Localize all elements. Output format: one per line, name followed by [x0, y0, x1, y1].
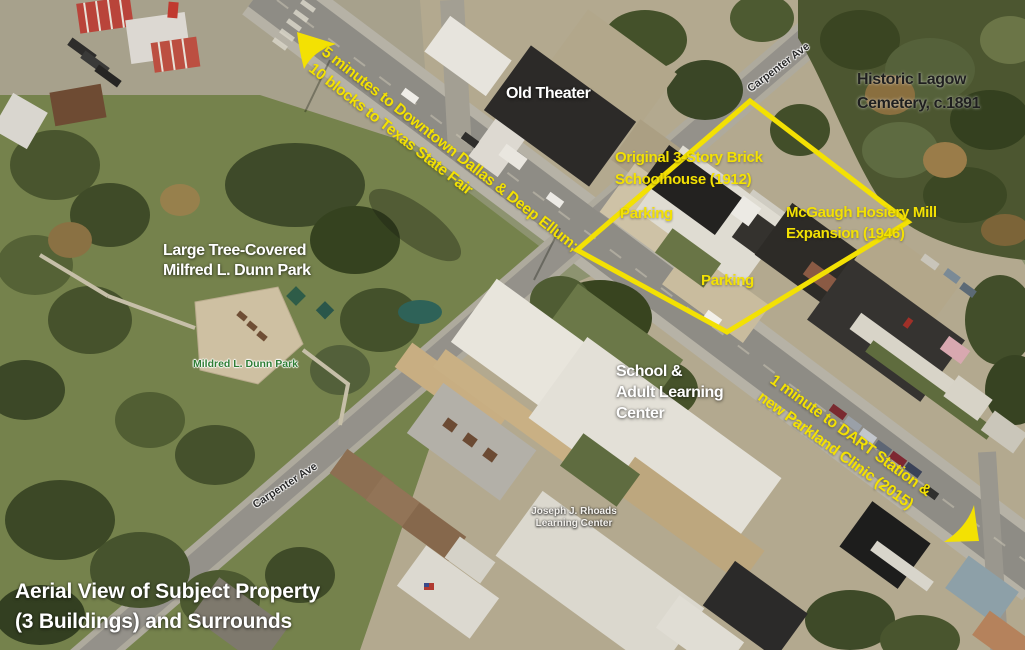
- learning-center-label: School & Adult Learning Center: [616, 361, 723, 424]
- old-theater-label: Old Theater: [506, 84, 591, 104]
- cemetery-label: Historic Lagow Cemetery, c.1891: [857, 68, 980, 116]
- map-poi-dunn-park: Mildred L. Dunn Park: [193, 354, 298, 374]
- schoolhouse-label: Original 3-Story Brick Schoolhouse (1912…: [615, 147, 763, 191]
- map-poi-rhoads: Joseph J. Rhoads Learning Center: [518, 506, 630, 530]
- mill-label: McGaugh Hosiery Mill Expansion (1946): [786, 202, 937, 244]
- dunn-park-label: Large Tree-Covered Milfred L. Dunn Park: [163, 241, 311, 281]
- image-title: Aerial View of Subject Property (3 Build…: [15, 577, 320, 637]
- aerial-map: 5 minutes to Downtown Dallas & Deep Ellu…: [0, 0, 1025, 650]
- se-direction-arrow-icon: [944, 505, 979, 542]
- parking-label-south: Parking: [701, 271, 754, 291]
- parking-label-west: Parking: [620, 204, 673, 224]
